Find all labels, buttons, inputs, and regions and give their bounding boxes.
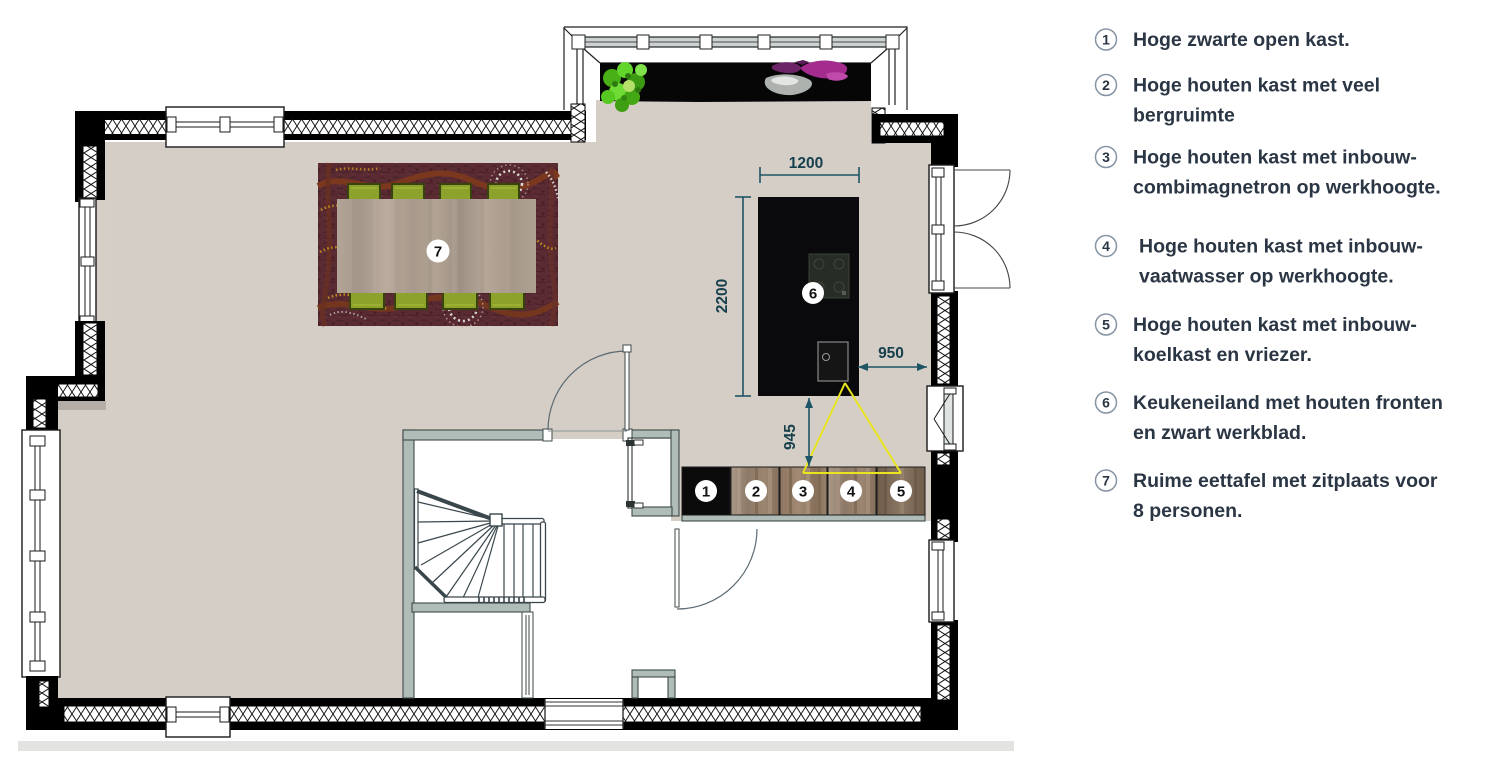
svg-text:1200: 1200 — [789, 155, 823, 172]
svg-text:Keukeneiland met houten fronte: Keukeneiland met houten fronten — [1133, 392, 1443, 414]
svg-text:combimagnetron op werkhoogte.: combimagnetron op werkhoogte. — [1133, 177, 1441, 199]
svg-text:945: 945 — [782, 424, 799, 450]
svg-text:Ruime eettafel met zitplaats v: Ruime eettafel met zitplaats voor — [1133, 470, 1438, 492]
svg-text:Hoge zwarte open kast.: Hoge zwarte open kast. — [1133, 29, 1350, 51]
svg-text:2200: 2200 — [714, 279, 731, 313]
svg-text:7: 7 — [434, 244, 442, 261]
svg-text:koelkast en vriezer.: koelkast en vriezer. — [1133, 344, 1312, 366]
svg-text:2: 2 — [752, 484, 760, 501]
svg-text:bergruimte: bergruimte — [1133, 105, 1235, 127]
svg-text:Hoge houten kast met veel: Hoge houten kast met veel — [1133, 75, 1380, 97]
svg-text:6: 6 — [1102, 395, 1110, 411]
svg-text:2: 2 — [1102, 77, 1110, 93]
svg-text:1: 1 — [1102, 32, 1110, 48]
svg-text:3: 3 — [799, 484, 807, 501]
svg-text:Hoge houten kast met inbouw-: Hoge houten kast met inbouw- — [1133, 147, 1417, 169]
svg-text:3: 3 — [1102, 149, 1110, 165]
svg-text:7: 7 — [1102, 473, 1110, 489]
svg-text:5: 5 — [897, 484, 905, 501]
svg-text:6: 6 — [809, 286, 817, 303]
svg-text:Hoge houten kast met inbouw-: Hoge houten kast met inbouw- — [1139, 236, 1423, 258]
svg-text:vaatwasser op werkhoogte.: vaatwasser op werkhoogte. — [1139, 266, 1394, 288]
svg-text:4: 4 — [847, 484, 856, 501]
svg-text:Hoge houten kast met inbouw-: Hoge houten kast met inbouw- — [1133, 314, 1417, 336]
svg-text:950: 950 — [878, 345, 904, 362]
svg-text:1: 1 — [702, 484, 710, 501]
svg-text:4: 4 — [1102, 238, 1110, 254]
svg-text:5: 5 — [1102, 317, 1110, 333]
svg-text:8 personen.: 8 personen. — [1133, 500, 1242, 522]
svg-text:en zwart werkblad.: en zwart werkblad. — [1133, 422, 1306, 444]
